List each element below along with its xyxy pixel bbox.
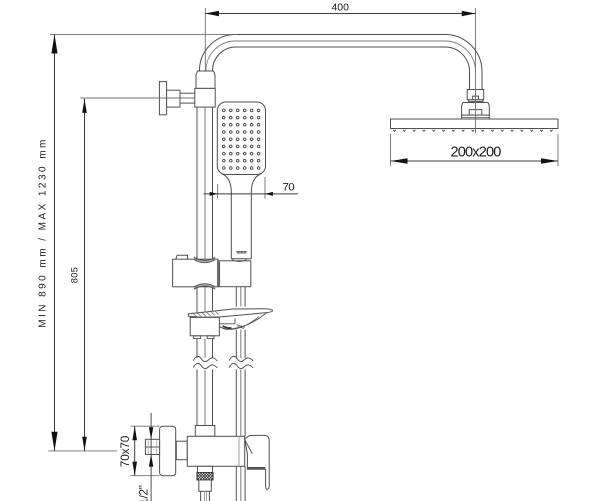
svg-text:200x200: 200x200 [450, 144, 501, 160]
svg-text:70: 70 [283, 182, 295, 194]
svg-text:400: 400 [332, 2, 350, 13]
svg-text:70x70: 70x70 [118, 435, 132, 467]
svg-text:1/2": 1/2" [137, 485, 151, 501]
svg-text:805: 805 [69, 267, 79, 284]
svg-text:MIN 890 mm / MAX 1230 mm: MIN 890 mm / MAX 1230 mm [37, 137, 48, 328]
